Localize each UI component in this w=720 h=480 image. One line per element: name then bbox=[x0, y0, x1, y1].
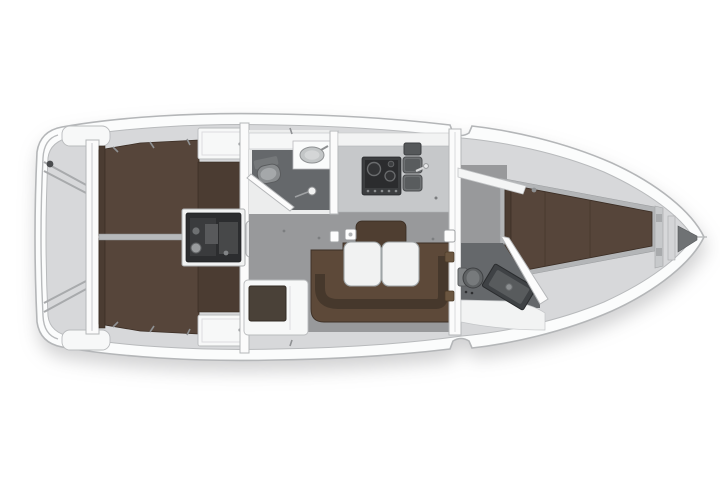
engine-pulley-icon bbox=[191, 243, 201, 253]
saloon-table bbox=[344, 242, 419, 286]
galley-locker bbox=[404, 143, 421, 155]
shower-mixer-icon bbox=[308, 187, 316, 195]
galley bbox=[338, 133, 449, 212]
berth-extension bbox=[198, 262, 243, 312]
shelf-fitting-icon bbox=[532, 188, 537, 193]
engine-compartment bbox=[182, 209, 245, 266]
toilet-control-icon bbox=[465, 291, 468, 294]
burner-icon bbox=[368, 163, 381, 176]
berth-extension bbox=[198, 162, 243, 212]
layout-canvas bbox=[0, 0, 720, 480]
toilet-seat bbox=[467, 271, 480, 286]
locker-step bbox=[656, 248, 662, 256]
sink-inner bbox=[405, 177, 420, 189]
floor-fitting-icon bbox=[318, 237, 321, 240]
door-hinge-icon bbox=[445, 252, 454, 262]
table-leaf bbox=[344, 242, 381, 286]
door-latch-icon bbox=[444, 230, 455, 242]
nav-seat-unit bbox=[244, 280, 308, 335]
head-wall bbox=[330, 131, 338, 214]
berth-headboard bbox=[99, 240, 105, 328]
counter-fitting-icon bbox=[435, 197, 438, 200]
floor-fitting-icon bbox=[432, 238, 435, 241]
wardrobe bbox=[198, 128, 245, 159]
engine-part-icon bbox=[219, 222, 238, 254]
locker-step bbox=[656, 214, 662, 222]
burner-icon bbox=[388, 161, 394, 167]
engine-part-icon bbox=[205, 224, 218, 244]
engine-cap-icon bbox=[224, 251, 229, 256]
mast-step-icon bbox=[349, 233, 353, 237]
deck-fitting-icon bbox=[47, 161, 54, 168]
floor-fitting-icon bbox=[283, 230, 286, 233]
engine-pulley-icon bbox=[192, 227, 199, 234]
faucet-base-icon bbox=[424, 164, 429, 169]
nav-seat bbox=[249, 286, 286, 321]
berth-headboard bbox=[99, 146, 105, 235]
toilet-control-icon bbox=[471, 292, 474, 295]
burner-icon bbox=[385, 171, 395, 181]
chain-locker-wall bbox=[668, 216, 675, 260]
boat-layout-diagram bbox=[0, 0, 720, 480]
basin-inner bbox=[305, 150, 320, 160]
table-leaf bbox=[382, 242, 419, 286]
door-hinge-icon bbox=[445, 291, 454, 301]
door-latch-icon bbox=[330, 231, 339, 242]
wardrobe bbox=[198, 315, 245, 346]
centerline-partition bbox=[99, 234, 183, 240]
